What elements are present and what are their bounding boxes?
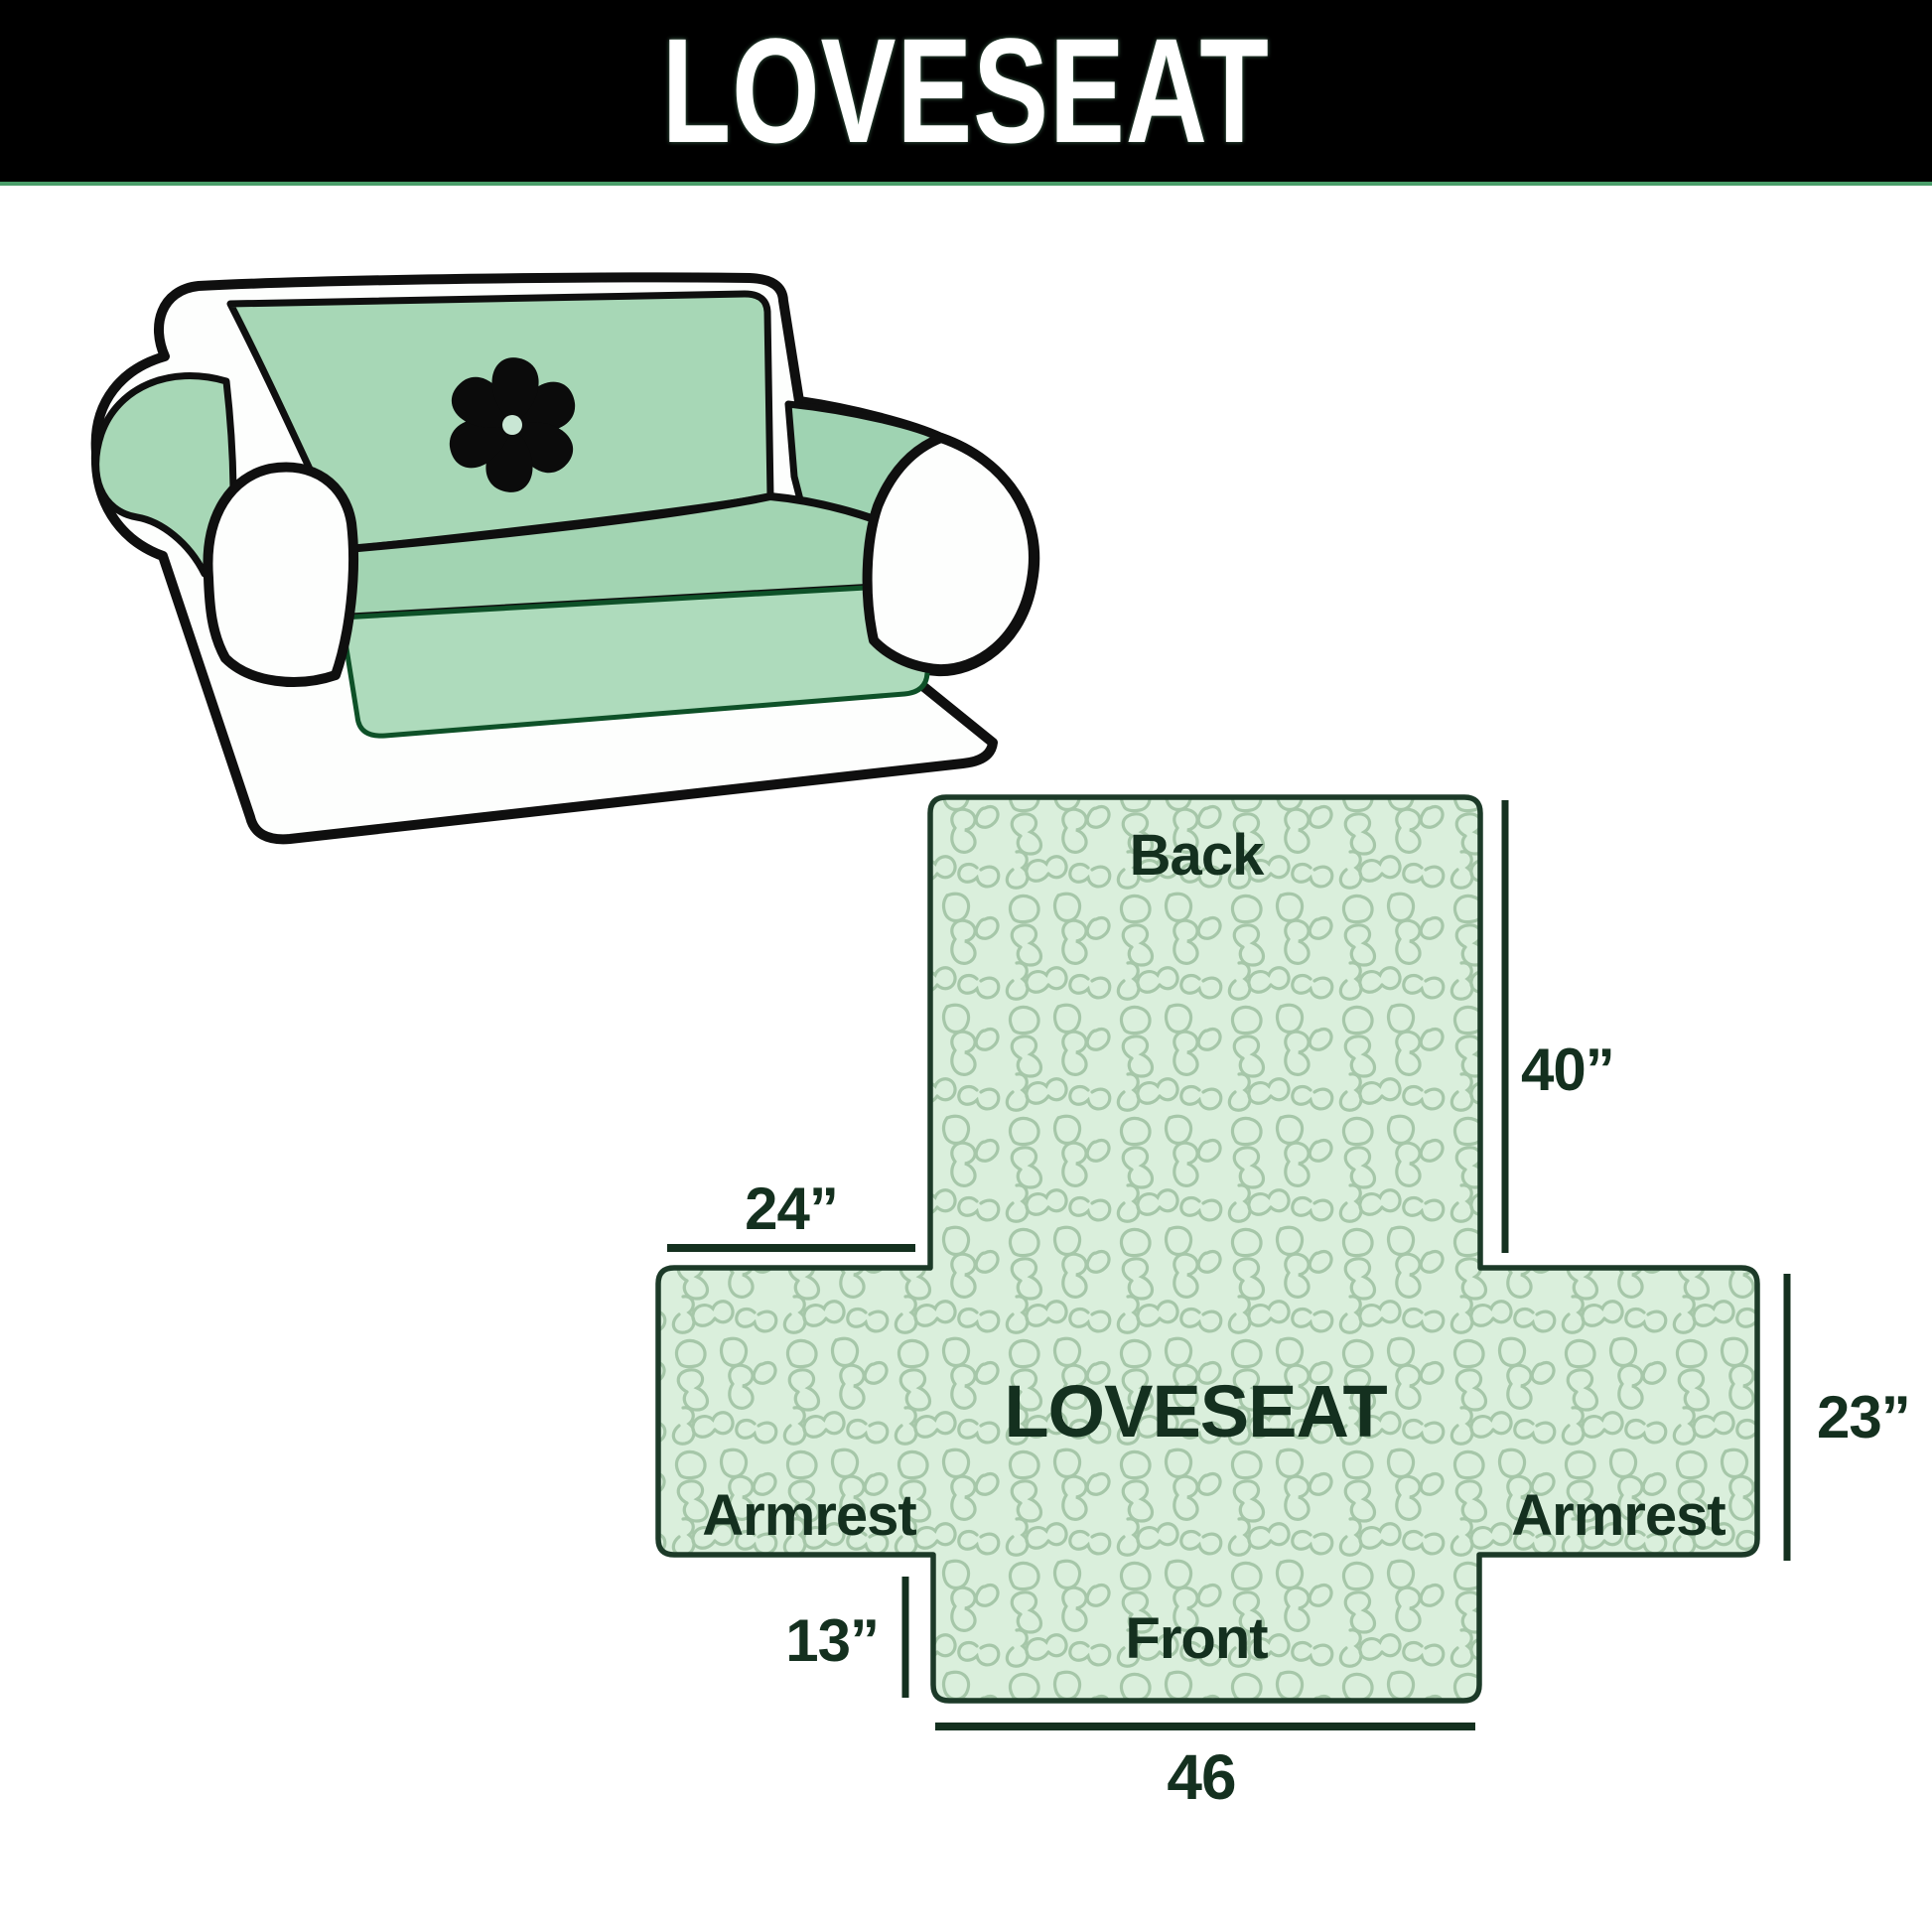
infographic-canvas: Back LOVESEAT Armrest Armrest Front 40” … bbox=[0, 0, 1932, 1932]
sofa-right-arm-roll bbox=[868, 438, 1034, 669]
dim-front-drop: 13” bbox=[785, 1607, 879, 1674]
label-front: Front bbox=[1125, 1606, 1268, 1671]
dim-armrest-side-height: 23” bbox=[1817, 1384, 1910, 1450]
sofa-illustration bbox=[96, 277, 1035, 839]
dim-front-width: 46 bbox=[1167, 1741, 1235, 1813]
dim-back-height: 40” bbox=[1521, 1036, 1614, 1103]
label-armrest-right: Armrest bbox=[1511, 1483, 1725, 1548]
sofa-left-arm-roll bbox=[207, 467, 353, 681]
label-loveseat-center: LOVESEAT bbox=[1004, 1370, 1387, 1452]
label-armrest-left: Armrest bbox=[702, 1483, 916, 1548]
dim-armrest-top-width: 24” bbox=[745, 1175, 838, 1242]
label-back: Back bbox=[1130, 823, 1265, 888]
cover-dimension-diagram: Back LOVESEAT Armrest Armrest Front 40” … bbox=[658, 797, 1910, 1813]
